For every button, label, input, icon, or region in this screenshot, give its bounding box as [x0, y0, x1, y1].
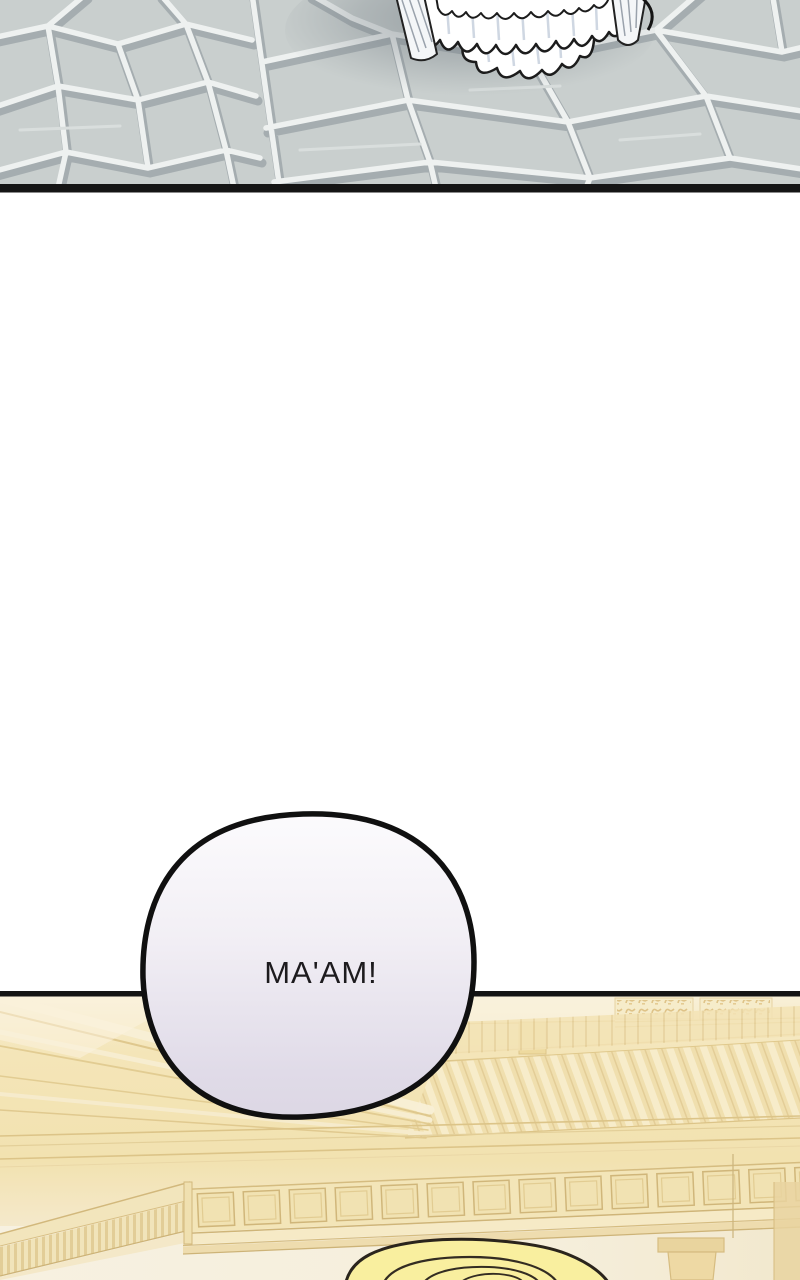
- railing-panel: [243, 1190, 280, 1225]
- railing-panel: [611, 1174, 648, 1209]
- railing-panel: [565, 1176, 602, 1211]
- panel-divider-top: [0, 184, 800, 193]
- railing-panel: [519, 1178, 556, 1213]
- pillar-shaft: [668, 1252, 716, 1280]
- comic-page-art: MA'AM!: [0, 0, 800, 1280]
- railing-panel: [335, 1186, 372, 1221]
- speech-bubble: MA'AM!: [143, 814, 474, 1117]
- right-column-band: [774, 1182, 800, 1280]
- speech-bubble-text: MA'AM!: [264, 955, 378, 990]
- railing-panel: [473, 1180, 510, 1215]
- railing-panel: [703, 1170, 740, 1205]
- corner-post: [184, 1182, 192, 1244]
- pillar-capital: [658, 1238, 724, 1252]
- railing-panel: [197, 1192, 234, 1227]
- railing-panel: [427, 1182, 464, 1217]
- railing-panel: [289, 1188, 326, 1223]
- railing-panel: [381, 1184, 418, 1219]
- panel-ballroom-floor: [0, 0, 800, 195]
- webtoon-page: MA'AM!: [0, 0, 800, 1280]
- railing-panel: [657, 1172, 694, 1207]
